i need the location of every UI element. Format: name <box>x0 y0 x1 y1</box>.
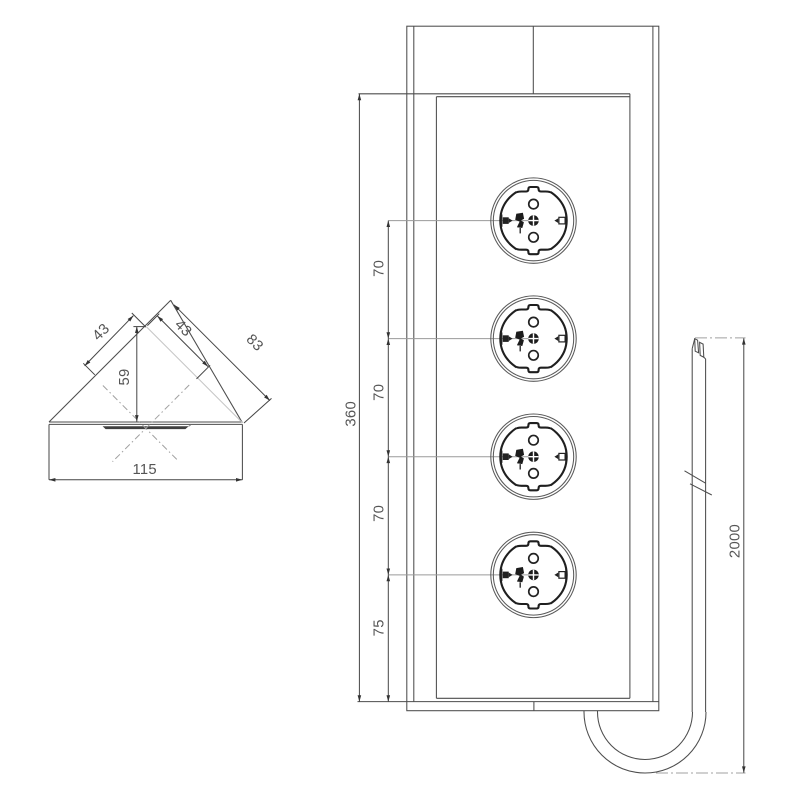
svg-text:115: 115 <box>132 462 157 478</box>
svg-text:59: 59 <box>117 368 133 385</box>
svg-text:83: 83 <box>243 332 266 355</box>
svg-text:70: 70 <box>372 505 388 522</box>
svg-text:43: 43 <box>171 317 194 340</box>
svg-text:75: 75 <box>372 619 388 636</box>
svg-text:70: 70 <box>372 384 388 401</box>
svg-text:2000: 2000 <box>727 524 743 558</box>
svg-text:360: 360 <box>343 401 359 427</box>
svg-text:70: 70 <box>371 260 387 277</box>
